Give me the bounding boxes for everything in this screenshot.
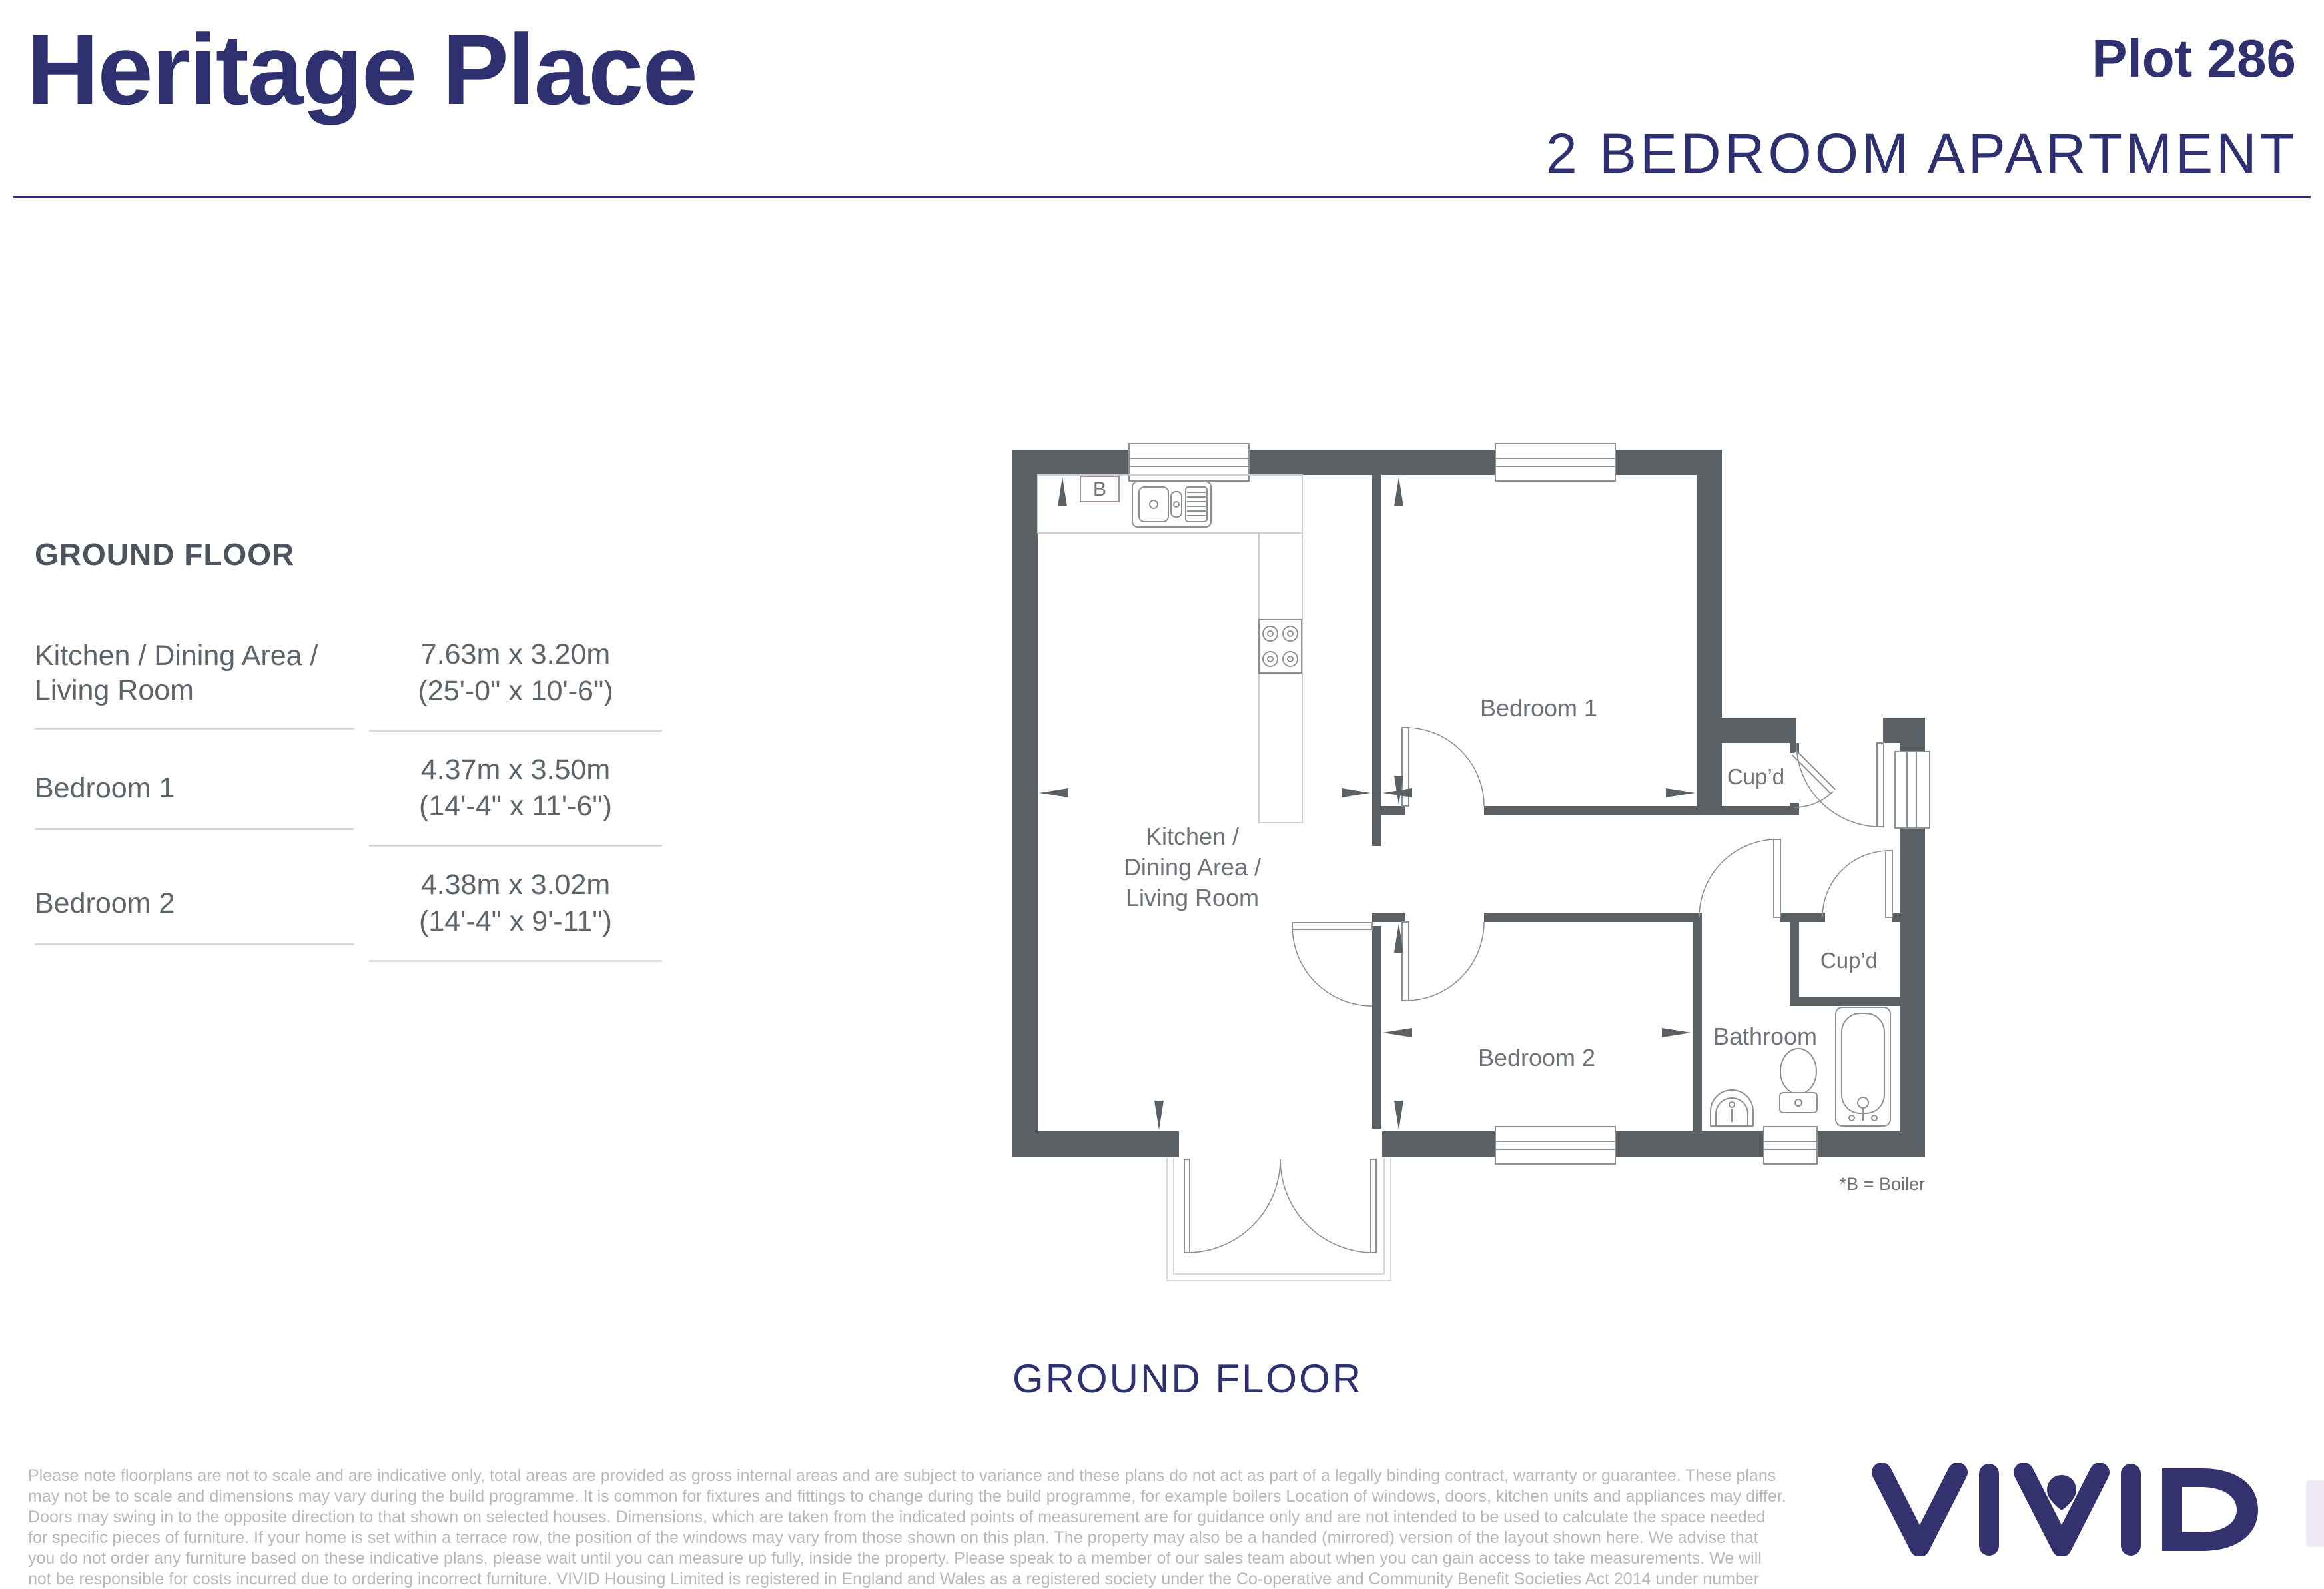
measurement-arrows [1039, 477, 1695, 1130]
bathroom-label: Bathroom [1713, 1023, 1817, 1050]
room-schedule: GROUND FLOOR Kitchen / Dining Area / Liv… [35, 536, 677, 962]
hall-window [1895, 752, 1930, 828]
room-name: Kitchen / Dining Area / Living Room [35, 618, 354, 730]
cupboard2-label: Cup’d [1820, 948, 1878, 973]
logo-letter-v1 [1882, 1472, 1958, 1547]
imperial-dimension: (14'-4" x 9'-11") [369, 903, 662, 940]
sink [1132, 482, 1211, 527]
plot-number: Plot 286 [2092, 28, 2296, 89]
walls [1012, 450, 1925, 1157]
basin [1711, 1090, 1753, 1126]
apartment-type: 2 BEDROOM APARTMENT [1546, 121, 2297, 186]
room-dimensions: 7.63m x 3.20m (25'-0" x 10'-6") [369, 616, 662, 732]
schedule-row: Bedroom 2 4.38m x 3.02m (14'-4" x 9'-11"… [35, 847, 677, 962]
schedule-row: Kitchen / Dining Area / Living Room 7.63… [35, 616, 677, 732]
room-dimensions: 4.38m x 3.02m (14'-4" x 9'-11") [369, 847, 662, 962]
bedroom2-door-arc [1405, 922, 1484, 1001]
bathroom-door-arc [1699, 839, 1777, 917]
french-door-arc-left [1187, 1159, 1280, 1253]
plan-caption: GROUND FLOOR [1012, 1356, 1363, 1402]
french-door-opening [1179, 1129, 1382, 1159]
schedule-title: GROUND FLOOR [35, 536, 677, 572]
schedule-row: Bedroom 1 4.37m x 3.50m (14'-4" x 11'-6"… [35, 732, 677, 847]
floorplan-svg: B [999, 433, 1965, 1319]
development-title: Heritage Place [27, 12, 697, 127]
hob [1259, 620, 1302, 673]
kitchen-label-line1: Kitchen / [1146, 823, 1239, 850]
bedroom1-window [1495, 444, 1615, 481]
room-labels: Bedroom 1 Bedroom 2 Cup’d Cup’d Bathroom… [1124, 694, 1878, 1071]
metric-dimension: 4.38m x 3.02m [369, 867, 662, 903]
legal-disclaimer: Please note floorplans are not to scale … [28, 1466, 1786, 1589]
cupboard1-label: Cup’d [1727, 764, 1784, 789]
bathroom-window [1764, 1127, 1817, 1164]
entry-door-arc [1796, 743, 1880, 827]
bedroom1-label: Bedroom 1 [1480, 694, 1597, 722]
imperial-dimension: (14'-4" x 11'-6") [369, 788, 662, 825]
toilet [1780, 1049, 1817, 1113]
cupboard2-door-arc [1822, 851, 1889, 917]
imperial-dimension: (25'-0" x 10'-6") [369, 673, 662, 710]
bedroom2-window [1495, 1127, 1615, 1164]
vivid-logo [1865, 1463, 2298, 1560]
kitchen-fixtures: B [1038, 475, 1302, 823]
french-door-arc-right [1280, 1159, 1373, 1253]
corner-accent [2306, 1480, 2324, 1547]
boiler-note: *B = Boiler [1840, 1174, 1925, 1194]
bedroom2-label: Bedroom 2 [1478, 1044, 1595, 1071]
bathtub [1836, 1007, 1890, 1126]
metric-dimension: 4.37m x 3.50m [369, 752, 662, 788]
floorplan-drawing: B [999, 433, 1965, 1319]
boiler-letter: B [1093, 478, 1106, 500]
kitchen-label-line2: Dining Area / [1124, 853, 1261, 881]
living-door-arc [1292, 926, 1372, 1006]
bedroom1-door-arc [1405, 728, 1484, 806]
room-dimensions: 4.37m x 3.50m (14'-4" x 11'-6") [369, 732, 662, 847]
room-name: Bedroom 1 [35, 748, 354, 830]
kitchen-label-line3: Living Room [1126, 884, 1259, 911]
logo-letter-d [2162, 1468, 2258, 1551]
room-name: Bedroom 2 [35, 863, 354, 945]
floorplan-page: Heritage Place Plot 286 2 BEDROOM APARTM… [0, 0, 2324, 1589]
metric-dimension: 7.63m x 3.20m [369, 636, 662, 673]
header-divider [13, 196, 2311, 198]
